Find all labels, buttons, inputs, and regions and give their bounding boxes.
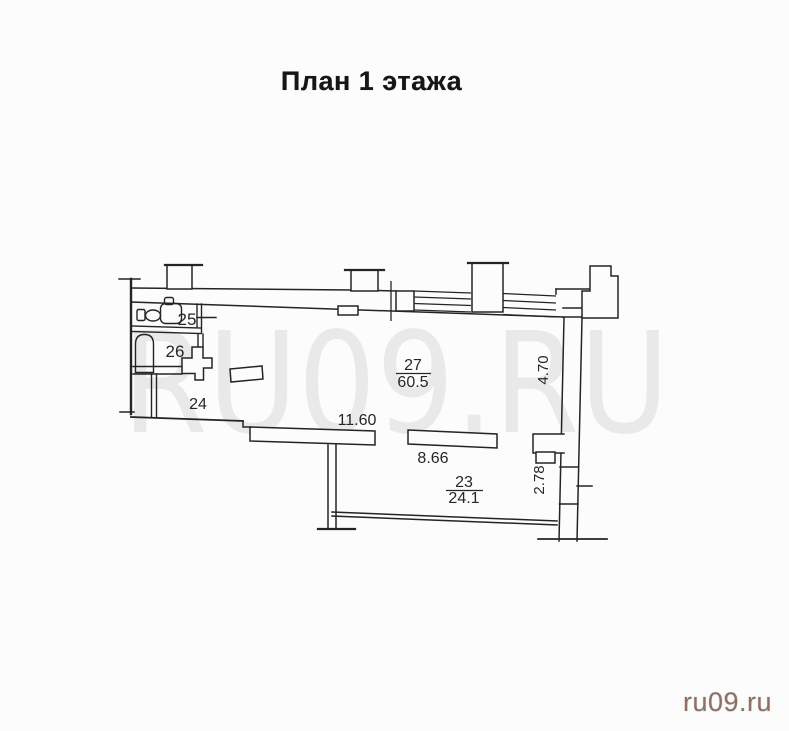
window-band-2: [503, 294, 556, 318]
right-wall-pier-box: [536, 452, 555, 463]
toilet-cistern-icon: [137, 310, 145, 321]
room-27-area: 60.5: [397, 374, 428, 391]
scanned-floor-plan-page: План 1 этажа RU09.RU: [0, 0, 789, 731]
partition-8-66: [408, 430, 497, 448]
room24-bottom-wall: [131, 417, 243, 421]
pillar-upper: [472, 263, 503, 312]
chimney-left: [167, 265, 192, 289]
site-logo: ru09.ru: [683, 687, 772, 718]
room-25-label: 25: [178, 310, 197, 329]
fixtures: [136, 298, 182, 373]
right-wall-inner: [559, 318, 564, 541]
dimension-4-70: 4.70: [535, 355, 552, 384]
room-23-label: 23: [455, 474, 473, 491]
interior-pillars: [182, 347, 564, 463]
dimension-8-66: 8.66: [417, 450, 448, 467]
room25-bottom-b: [131, 332, 201, 334]
dimension-2-78: 2.78: [531, 465, 548, 494]
stepped-pillar: [182, 347, 212, 380]
room23-bottom-outer: [332, 512, 557, 521]
corner-pillar: [582, 266, 618, 318]
room-23-area: 24.1: [448, 490, 479, 507]
window-band-1: [414, 291, 471, 312]
floor-plan-drawing: 25 26 24 27 60.5 23 24.1 11.60 8.66 4.70…: [0, 0, 789, 731]
right-wall-pier: [533, 434, 564, 453]
right-wall-outer: [577, 318, 582, 541]
top-wall-outer-b: [378, 291, 396, 292]
toilet-bowl-icon: [146, 310, 161, 321]
labels: 25 26 24 27 60.5 23 24.1 11.60 8.66 4.70…: [166, 310, 552, 507]
wall-tab: [338, 306, 358, 315]
room-24-label: 24: [189, 396, 207, 413]
room-26-label: 26: [166, 342, 185, 361]
top-wall-outer-a: [131, 288, 351, 290]
room-27-label: 27: [404, 357, 422, 374]
room23-bottom-inner: [332, 516, 557, 525]
window-pier: [396, 291, 414, 311]
free-pillar: [230, 366, 263, 382]
room24-step: [243, 421, 250, 427]
corridor-wall-band: [250, 427, 375, 445]
dimension-11-60: 11.60: [338, 412, 377, 429]
chimney-mid: [351, 270, 378, 291]
